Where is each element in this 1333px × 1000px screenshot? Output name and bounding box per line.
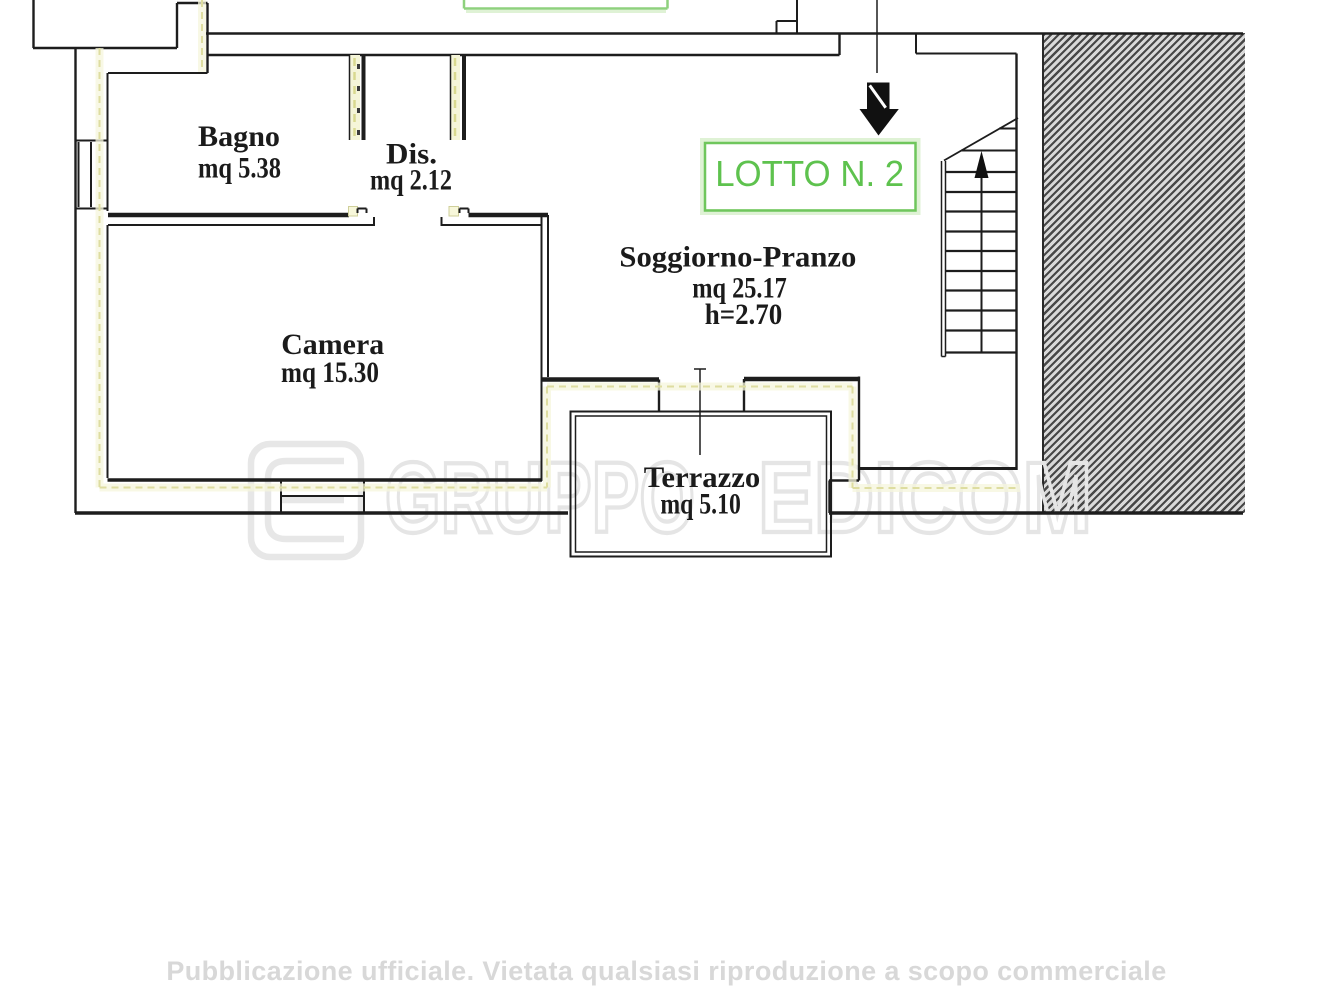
svg-text:mq 5.38: mq 5.38 xyxy=(198,152,281,185)
svg-text:mq 2.12: mq 2.12 xyxy=(370,164,452,197)
svg-text:Bagno: Bagno xyxy=(198,120,280,153)
svg-text:Soggiorno-Pranzo: Soggiorno-Pranzo xyxy=(619,241,856,274)
svg-text:mq 5.10: mq 5.10 xyxy=(660,488,741,521)
svg-text:LOTTO N. 2: LOTTO N. 2 xyxy=(715,153,904,194)
svg-text:h=2.70: h=2.70 xyxy=(705,298,783,331)
svg-text:mq 15.30: mq 15.30 xyxy=(281,356,379,389)
